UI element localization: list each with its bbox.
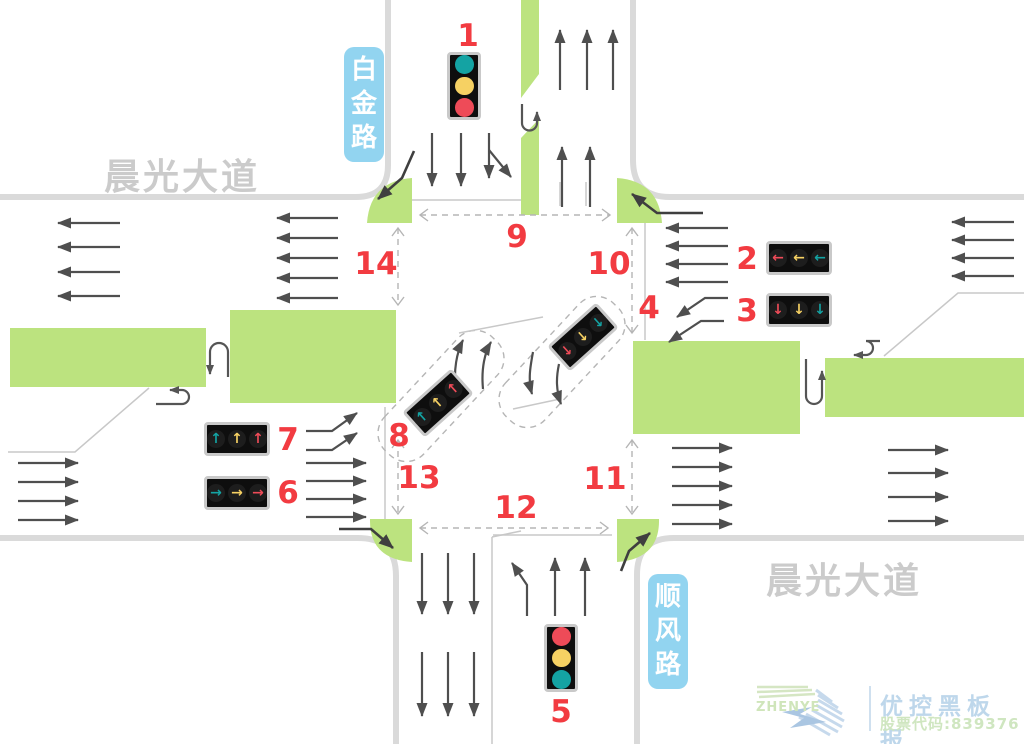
lane-lines: [8, 182, 1024, 744]
marker-7: 7: [277, 422, 299, 458]
marker-8: 8: [388, 418, 410, 454]
signal-lamp: ↑: [249, 430, 267, 448]
marker-12: 12: [494, 490, 537, 526]
signal-lamp: ←: [811, 249, 829, 267]
road-name-chenguang-avenue-west: 晨光大道: [104, 148, 260, 200]
green-medians: [10, 0, 1024, 434]
signal-lamp: [455, 98, 474, 117]
marker-9: 9: [506, 219, 528, 255]
watermark-divider: [869, 686, 871, 731]
marker-11: 11: [583, 461, 626, 497]
watermark-logo-icon: ZHENYE: [756, 687, 844, 735]
signal-lamp: ↑: [228, 430, 246, 448]
traffic-light-5: [544, 624, 578, 692]
signal-lamp: ↑: [207, 430, 225, 448]
signal-lamp: →: [207, 484, 225, 502]
signal-lamp: →: [228, 484, 246, 502]
intersection-graphics: ZHENYE: [0, 0, 1024, 744]
marker-5: 5: [550, 694, 572, 730]
marker-13: 13: [397, 460, 440, 496]
traffic-light-7: ↑ ↑ ↑: [204, 422, 270, 456]
marker-2: 2: [736, 241, 758, 277]
signal-lamp: ←: [769, 249, 787, 267]
signal-lamp: →: [249, 484, 267, 502]
signal-lamp: [552, 649, 571, 668]
signal-lamp: [455, 55, 474, 74]
road-name-chenguang-avenue-east: 晨光大道: [766, 552, 922, 604]
signal-lamp: ↓: [811, 301, 829, 319]
signal-lamp: [552, 627, 571, 646]
traffic-light-2: ← ← ←: [766, 241, 832, 275]
signal-lamp: ↓: [790, 301, 808, 319]
marker-10: 10: [587, 246, 630, 282]
watermark-brand: ZHENYE: [756, 700, 820, 715]
marker-1: 1: [457, 18, 479, 54]
signal-lamp: [455, 77, 474, 96]
marker-6: 6: [277, 475, 299, 511]
intersection-diagram: ZHENYE ← ← ← ↓ ↓ ↓ ↓ ↓ ↓ → → → ↑ ↑ ↑ ↑ ↑: [0, 0, 1024, 744]
signal-lamp: [552, 670, 571, 689]
road-label-shunfeng-road: 顺风路: [648, 574, 688, 689]
traffic-light-1: [447, 52, 481, 120]
signal-lamp: ←: [790, 249, 808, 267]
signal-lamp: ↓: [769, 301, 787, 319]
traffic-light-3: ↓ ↓ ↓: [766, 293, 832, 327]
marker-4: 4: [638, 290, 660, 326]
traffic-light-6: → → →: [204, 476, 270, 510]
marker-14: 14: [354, 246, 397, 282]
marker-3: 3: [736, 293, 758, 329]
road-label-baijin-road: 白金路: [344, 47, 384, 162]
watermark-stock-code: 股票代码:839376: [880, 713, 1020, 734]
